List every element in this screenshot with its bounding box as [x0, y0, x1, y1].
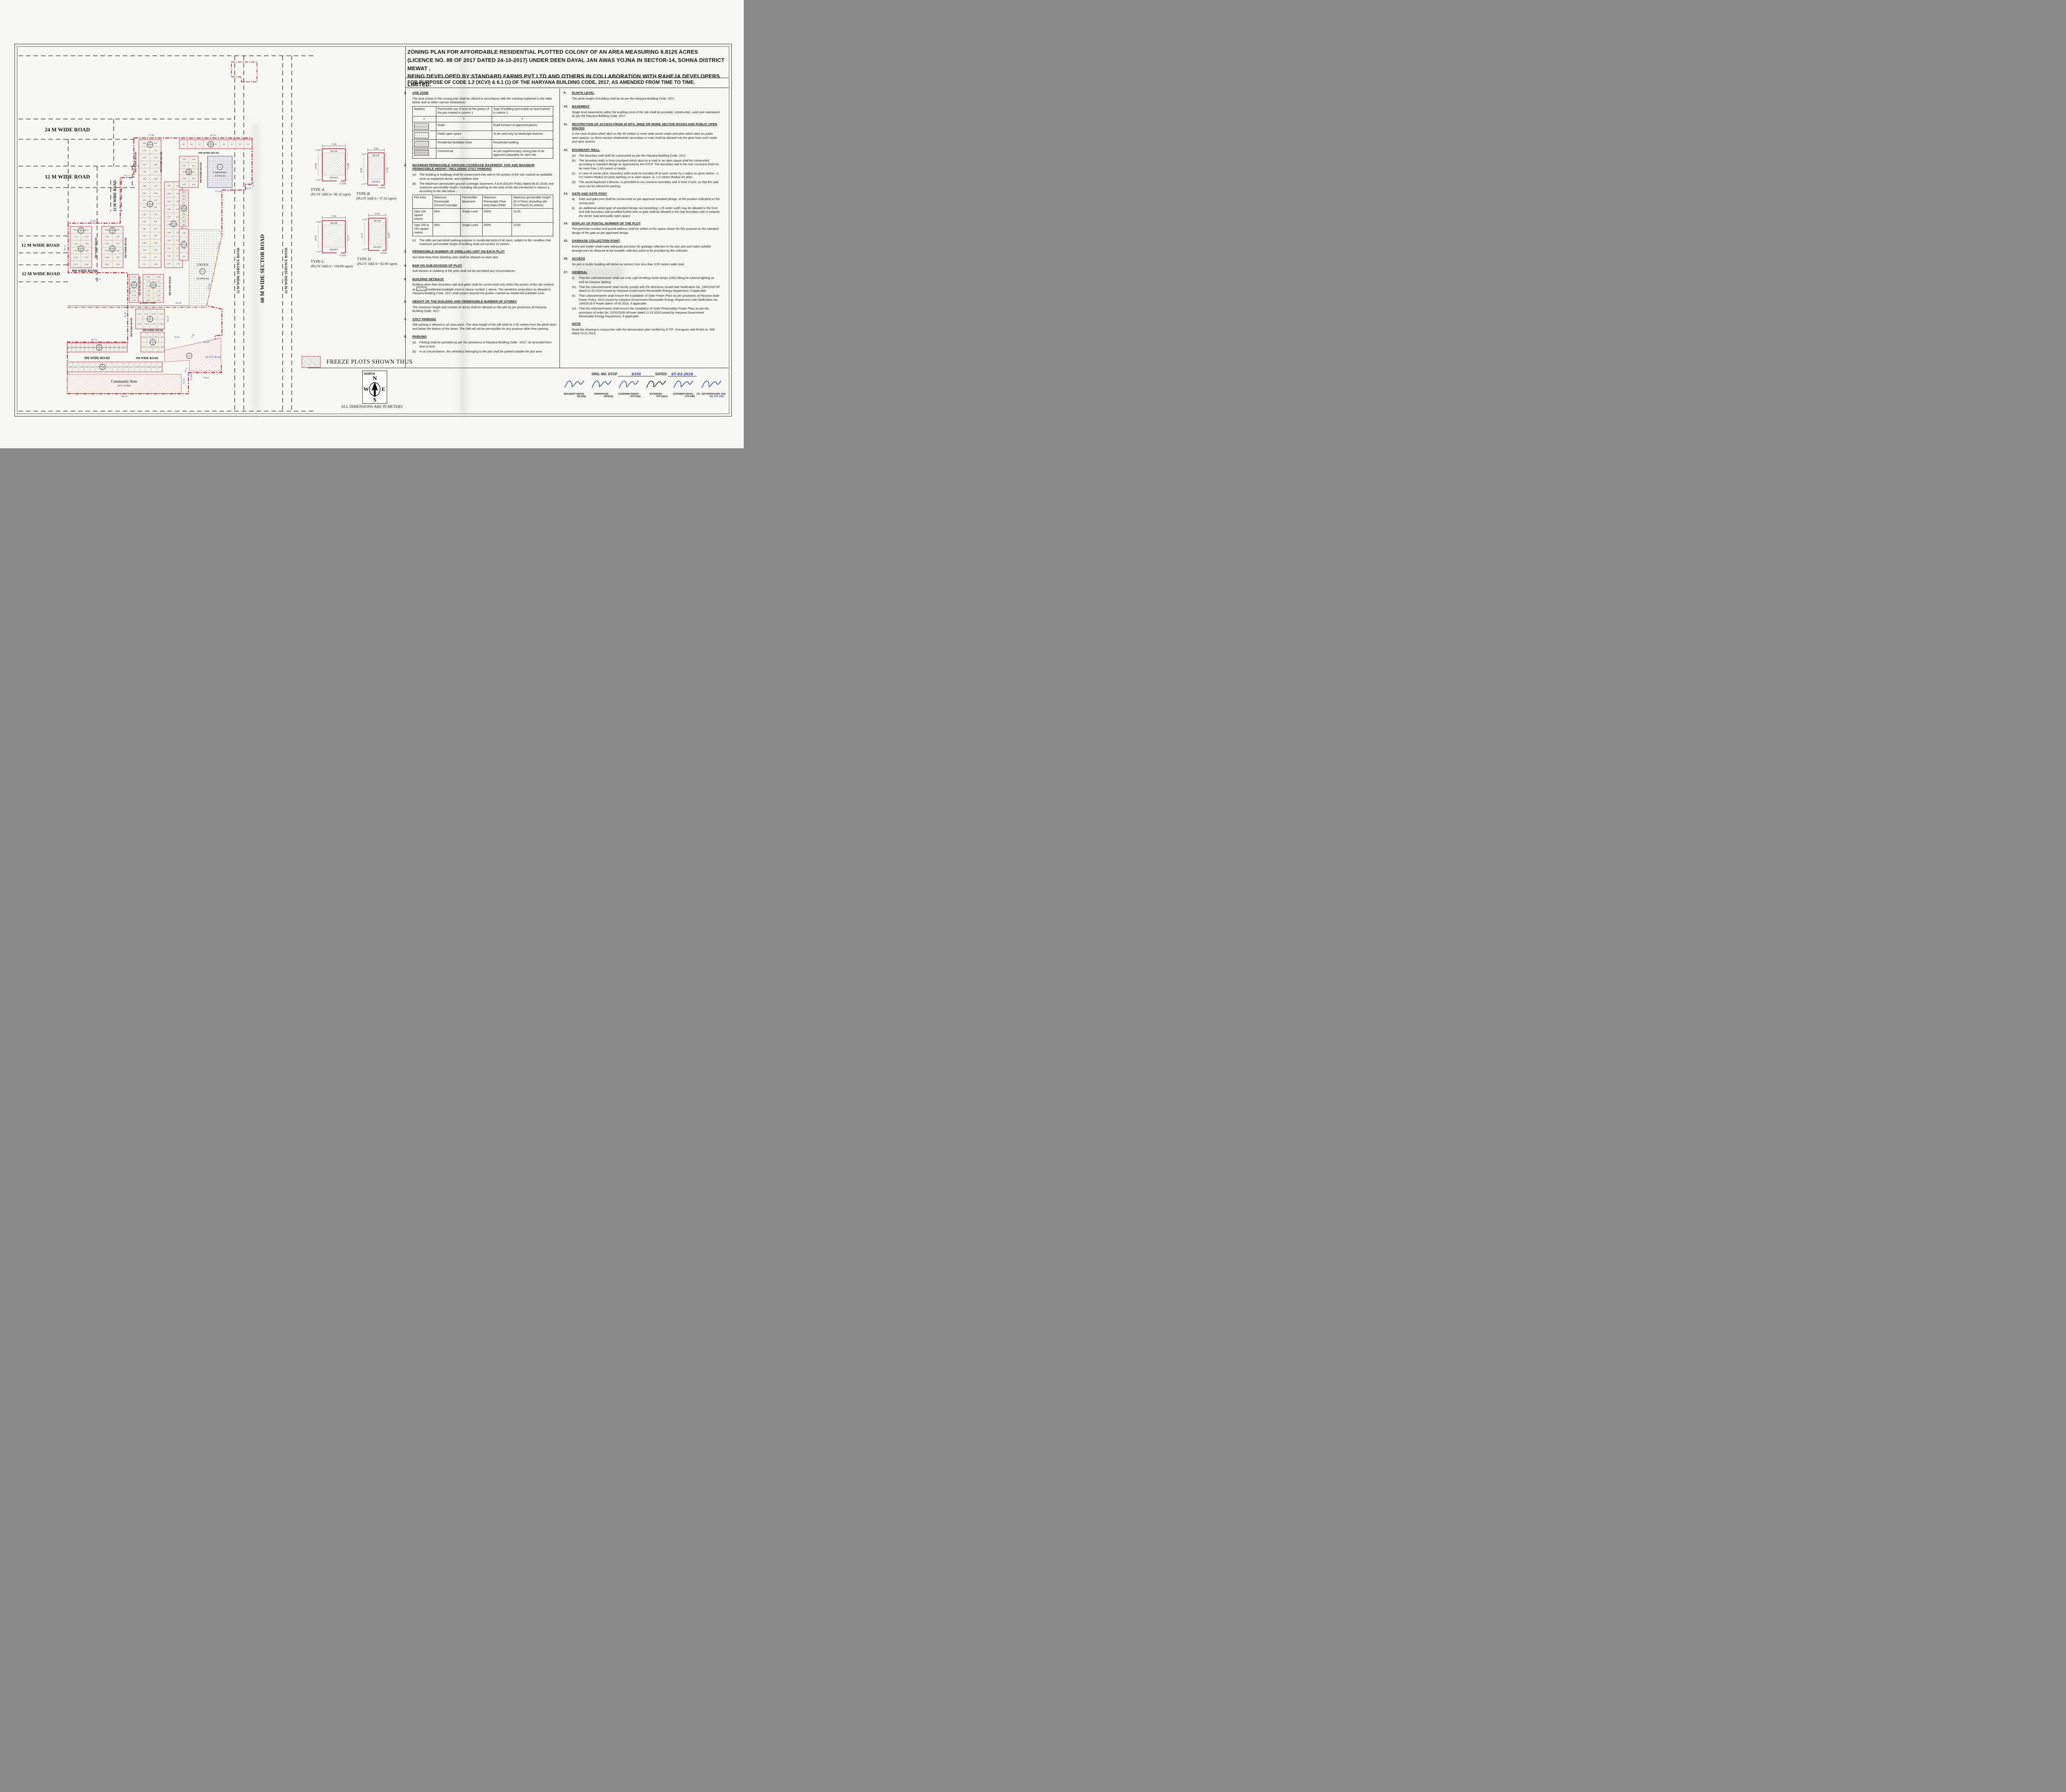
- plot-number: C122: [132, 295, 136, 297]
- plot-number: A12: [192, 171, 196, 173]
- plot-number: C89: [167, 232, 171, 234]
- block-id-circle: C4: [181, 242, 187, 248]
- svg-text:C: C: [112, 246, 113, 249]
- plot-number: C33: [182, 255, 186, 257]
- block-id-circle: C34: [147, 201, 153, 207]
- svg-text:10: 10: [80, 250, 82, 252]
- plot-number: B21: [182, 195, 186, 197]
- plot-number: B155: [110, 347, 115, 349]
- plot-number: C138: [152, 313, 156, 315]
- plot-number: C41: [154, 228, 157, 230]
- block-id-circle: A9: [208, 141, 214, 148]
- detached-parcel-boundary: [231, 62, 257, 82]
- plot-number: C93: [167, 263, 171, 265]
- plot-number: C142: [144, 323, 149, 325]
- plot-number: C84: [167, 193, 171, 195]
- plot-number: C65: [143, 221, 146, 223]
- svg-text:C: C: [152, 340, 154, 342]
- plot-number: D99: [116, 229, 120, 231]
- plot-number: C72: [176, 263, 180, 265]
- plot-number: C38: [154, 249, 157, 251]
- block-id-circle: C22: [171, 221, 176, 227]
- svg-text:C: C: [149, 202, 151, 204]
- dimension-label: 63.89: [90, 220, 96, 223]
- plot-number: C70: [143, 256, 146, 258]
- plot-number: B22: [182, 198, 186, 200]
- plot-number: A175: [118, 366, 123, 368]
- svg-text:14: 14: [98, 348, 100, 351]
- plot-number: C101: [105, 236, 109, 238]
- plot-number: A2: [239, 143, 241, 145]
- svg-text:10: 10: [188, 173, 190, 175]
- plot-number: A4: [223, 143, 225, 145]
- svg-text:8: 8: [152, 343, 154, 345]
- dimension-label: 50.29: [167, 316, 169, 322]
- plot-number: C148: [159, 346, 164, 348]
- plot-block: A9A8A7A6A5A4A3A2A1: [179, 140, 252, 149]
- svg-text:B: B: [98, 345, 100, 347]
- svg-text:22: 22: [172, 225, 175, 227]
- plot-number: C141: [152, 323, 156, 325]
- plot-number: C131: [157, 281, 161, 283]
- plot-number: B29: [182, 224, 186, 226]
- plot-number: A168: [79, 366, 84, 368]
- block-id-circle: G2: [187, 353, 192, 359]
- plot-number: C105: [105, 263, 109, 265]
- road-label: 9M WIDE ROAD: [134, 152, 137, 172]
- plot-number: B152: [123, 347, 128, 349]
- plot-number: A1: [247, 143, 249, 145]
- block-id-circle: G1: [200, 269, 205, 274]
- dimension-label: 96.98: [176, 302, 181, 305]
- plot-number: C104: [105, 257, 109, 259]
- road-label: 9M WIDE ROAD: [160, 152, 163, 172]
- plot-number: A7: [198, 143, 201, 145]
- plot-number: B154: [114, 347, 119, 349]
- plot-number: C68: [143, 242, 146, 244]
- road-label: 9M WIDE ROAD: [95, 238, 98, 258]
- road-label: 9M WIDE ROAD: [136, 357, 158, 360]
- plot-number: C130: [157, 276, 161, 278]
- svg-text:34: 34: [149, 205, 151, 207]
- plot-number: C90: [167, 239, 171, 241]
- plot-number: C143: [137, 323, 142, 325]
- plot-number: C116: [74, 257, 78, 259]
- plot-number: C125: [146, 295, 151, 297]
- plot-number: A173: [107, 366, 112, 368]
- plot-number: A15: [183, 158, 186, 160]
- plot-number: A169: [85, 366, 89, 368]
- dimension-label: 45.63: [129, 288, 131, 294]
- plot-number: B27: [182, 217, 186, 219]
- road-label: 9M WIDE ROAD: [200, 162, 202, 183]
- dimension-label: 19.03: [183, 378, 186, 384]
- plot-number: C117: [74, 263, 78, 265]
- plot-number: C85: [167, 200, 171, 202]
- plot-number: A53: [154, 142, 158, 144]
- plot-number: B153: [119, 347, 123, 349]
- plot-number: C137: [144, 313, 149, 315]
- community-acreage: (0.871 ACRE): [117, 384, 131, 387]
- svg-text:A: A: [210, 142, 212, 144]
- plot-number: A16: [183, 164, 186, 167]
- plot-number: C133: [157, 290, 161, 292]
- plot-number: C144: [142, 336, 146, 338]
- svg-text:C: C: [152, 283, 154, 285]
- plot-number: C97: [116, 243, 119, 245]
- plot-number: B20: [182, 191, 186, 193]
- plot-number: C95: [116, 257, 119, 259]
- svg-text:4: 4: [183, 245, 185, 248]
- dimension-label: 80.32: [95, 278, 101, 281]
- svg-text:C1: C1: [219, 166, 221, 169]
- svg-text:8: 8: [150, 320, 151, 322]
- site-plan: A54A53C55C52C56C51C57C50C58C49C59C48C60C…: [0, 0, 744, 448]
- green-acreage: (0.339Acre): [197, 277, 209, 280]
- svg-text:2: 2: [150, 145, 151, 148]
- plot-number: A180: [146, 366, 151, 368]
- plot-number: C86: [167, 208, 171, 210]
- plot-number: A177: [129, 366, 134, 368]
- plot-number: A176: [124, 366, 129, 368]
- plot-number: C47: [154, 185, 157, 187]
- plot-number: B163: [76, 347, 81, 349]
- svg-text:9: 9: [210, 145, 212, 148]
- road-label: 9M WIDE ROAD: [139, 276, 141, 295]
- plot-number: C31: [182, 240, 186, 242]
- plot-number: A179: [141, 366, 145, 368]
- svg-text:17: 17: [101, 368, 104, 370]
- road-label: 24 M WIDE ROAD: [45, 126, 90, 133]
- dimension-label: 3.36: [190, 333, 195, 339]
- svg-text:C: C: [133, 283, 135, 285]
- plot-block: C129C130C128C131C127C132C126C133C125C134…: [143, 274, 164, 302]
- svg-text:C: C: [173, 221, 174, 224]
- svg-text:10: 10: [111, 250, 114, 252]
- plot-number: A170: [90, 366, 95, 368]
- dimension-label: 45.46: [124, 312, 127, 318]
- block-id-circle: B14: [96, 345, 102, 351]
- plot-number: C88: [167, 224, 171, 226]
- plot-number: B26: [182, 213, 186, 215]
- plot-number: A19: [183, 183, 186, 186]
- plot-number: C42: [154, 221, 157, 223]
- plot-number: A166: [68, 366, 73, 368]
- plot-number: C151: [142, 346, 146, 348]
- plot-number: C30: [182, 232, 186, 234]
- svg-text:6: 6: [133, 286, 135, 288]
- green-label: GREEN: [197, 263, 209, 267]
- dimension-label: 148.20: [120, 395, 127, 398]
- svg-text:2: 2: [81, 231, 82, 234]
- plot-number: C139: [159, 313, 163, 315]
- plot-number: C66: [143, 228, 146, 230]
- plot-number: B164: [72, 347, 76, 349]
- plot-number: C127: [146, 285, 151, 287]
- road-label: 60 M WIDE SECTOR ROAD: [259, 234, 265, 303]
- plot-number: C113: [74, 236, 78, 238]
- plot-number: C129: [146, 276, 151, 278]
- plot-number: C96: [116, 250, 119, 252]
- road-label: 9M WIDE ROAD: [198, 152, 219, 155]
- plot-number: A13: [192, 177, 196, 179]
- commercial-label: Commercial: [213, 171, 226, 174]
- road-label: 9M WIDE ROAD: [124, 238, 127, 258]
- plot-number: B160: [89, 347, 93, 349]
- svg-text:A: A: [188, 169, 190, 172]
- road-label: 3karam road: [139, 301, 155, 305]
- plot-number: C55: [143, 149, 146, 151]
- dimension-label: 39.13: [124, 174, 129, 177]
- plot-block: A166A167A168A169A170A171A172A173A174A175…: [67, 362, 162, 372]
- svg-text:A: A: [102, 364, 103, 367]
- plot-number: A178: [135, 366, 140, 368]
- community-label: Community Area: [111, 379, 137, 383]
- road-label: 9M WIDE ROAD: [72, 269, 97, 273]
- plot-number: B161: [85, 347, 89, 349]
- svg-text:D: D: [112, 228, 113, 231]
- block-id-circle: C12: [150, 282, 156, 288]
- g2-acreage-handwritten: (0.315 Acre): [205, 355, 221, 359]
- plot-number: C45: [154, 199, 157, 201]
- plot-number: C134: [157, 295, 161, 297]
- plot-number: A11: [192, 164, 195, 167]
- plot-number: C98: [116, 236, 119, 238]
- dimension-label: 30.00: [203, 376, 209, 379]
- dimension-label: 35.06: [174, 336, 180, 339]
- road-label: 12 M WIDE SERVICE ROAD: [236, 248, 240, 293]
- plot-number: C48: [154, 178, 157, 180]
- plot-number: C37: [154, 256, 157, 258]
- plot-number: C106: [84, 263, 89, 265]
- plot-number: A174: [113, 366, 117, 368]
- dimension-label: 15.58: [245, 187, 251, 190]
- plot-number: C121: [132, 290, 136, 292]
- plot-number: C118: [132, 276, 136, 278]
- plot-number: A5: [214, 143, 217, 145]
- block-id-circle: A17: [100, 364, 105, 370]
- plot-number: C40: [154, 235, 157, 237]
- dimension-label: 81.01: [210, 134, 216, 137]
- block-id-circle: B10: [181, 205, 187, 212]
- plot-number: C128: [146, 281, 151, 283]
- road-label: 12 M WIDE ROAD: [21, 243, 60, 248]
- dimension-label: 57.88: [148, 134, 154, 137]
- svg-text:C: C: [149, 317, 151, 319]
- block-id-circle: A10: [186, 169, 192, 175]
- plot-number: C83: [167, 185, 171, 187]
- plot-number: C44: [154, 206, 157, 208]
- plot-number: C51: [154, 157, 157, 159]
- plot-number: C71: [143, 263, 146, 265]
- plot-number: C52: [154, 149, 157, 151]
- plot-number: C109: [84, 243, 89, 245]
- plot-number: C64: [143, 213, 146, 215]
- svg-text:12: 12: [152, 286, 155, 288]
- plot-number: A17: [183, 171, 186, 173]
- block-id-circle: A2: [147, 142, 153, 148]
- green-area: [189, 230, 222, 306]
- plot-number: D100: [105, 229, 109, 231]
- dimension-label: 10.00: [190, 375, 193, 381]
- plot-number: C57: [143, 164, 146, 166]
- plot-number: B165: [67, 347, 72, 349]
- block-id-circle: C8: [147, 316, 153, 322]
- plot-number: C126: [146, 290, 151, 292]
- block-id-circle: C8: [150, 339, 156, 345]
- commercial-acreage: (0.540 Acre): [214, 175, 225, 177]
- plot-number: C39: [154, 242, 157, 244]
- block-id-circle: D2: [109, 228, 115, 234]
- plot-number: C43: [154, 213, 157, 215]
- plot-number: A3: [231, 143, 233, 145]
- plot-number: C132: [157, 285, 161, 287]
- plot-number: A10: [192, 158, 196, 160]
- plot-number: C150: [148, 346, 152, 348]
- dimension-label: 67.69: [215, 190, 221, 193]
- plot-number: C50: [154, 164, 157, 166]
- svg-text:A: A: [149, 142, 151, 145]
- svg-text:C: C: [183, 242, 185, 245]
- block-id-circle: D2: [78, 228, 84, 234]
- plot-number: C61: [143, 192, 146, 194]
- plot-number: A182: [157, 366, 162, 368]
- svg-text:G2: G2: [188, 355, 191, 357]
- plot-number: C58: [143, 171, 146, 173]
- plot-number: A18: [183, 177, 186, 179]
- road-label: 12 M WIDE SERVICE ROAD: [284, 248, 288, 293]
- plot-number: C103: [105, 250, 109, 252]
- dimension-label: 50.33: [64, 245, 67, 251]
- plot-number: C102: [105, 243, 109, 245]
- plot-number: C140: [159, 323, 163, 325]
- dimension-label: 14.57: [184, 367, 188, 373]
- svg-text:10: 10: [183, 209, 185, 212]
- plot-number: A14: [192, 183, 196, 186]
- dimension-label: 12.41: [252, 181, 255, 187]
- plot-number: C114: [74, 243, 78, 245]
- plot-number: C145: [148, 336, 152, 338]
- plot-number: C136: [137, 313, 142, 315]
- plot-number: A54: [143, 142, 147, 144]
- plot-number: B23: [182, 202, 186, 204]
- road-label: 9M WIDE ROAD: [143, 329, 163, 332]
- plot-number: B28: [182, 220, 186, 222]
- road-label: 9M WIDE ROAD: [131, 317, 133, 337]
- plot-number: A9: [182, 143, 185, 145]
- plot-number: C87: [167, 216, 171, 218]
- road-label: 9M WIDE ROAD: [169, 276, 171, 295]
- plot-number: A8: [190, 143, 193, 145]
- svg-text:C: C: [80, 246, 82, 249]
- plot-number: B156: [106, 347, 110, 349]
- plot-number: C107: [84, 257, 89, 259]
- svg-text:D: D: [80, 228, 82, 231]
- plot-number: C91: [167, 247, 171, 249]
- plot-number: C67: [143, 235, 146, 237]
- plot-number: C49: [154, 171, 157, 173]
- plot-number: A167: [74, 366, 78, 368]
- road-label: 12 M WIDE ROAD: [22, 271, 60, 276]
- zoning-plan-sheet: { "colors":{"boundary_red":"#c5303f","pl…: [0, 0, 744, 448]
- plot-number: C149: [154, 346, 158, 348]
- road-label: 12 M WIDE ROAD: [113, 180, 117, 212]
- plot-number: C62: [143, 199, 146, 201]
- block-id-circle: C10: [109, 246, 115, 252]
- plot-number: C59: [143, 178, 146, 180]
- plot-number: C92: [167, 255, 171, 257]
- block-id-circle: C10: [78, 246, 84, 252]
- plot-number: D111: [84, 229, 89, 231]
- plot-number: C69: [143, 249, 146, 251]
- plot-number: C36: [154, 263, 157, 265]
- svg-text:B: B: [183, 206, 185, 208]
- community-area: [67, 374, 181, 393]
- g2-area: [164, 338, 221, 371]
- plot-number: B162: [80, 347, 85, 349]
- dimension-label: 35.00: [203, 341, 209, 344]
- block-id-circle: C1: [217, 164, 223, 170]
- plot-number: C63: [143, 206, 146, 208]
- plot-number: C60: [143, 185, 146, 187]
- plot-number: C108: [84, 250, 89, 252]
- plot-number: C94: [116, 263, 119, 265]
- plot-number: C110: [84, 236, 88, 238]
- plot-number: C46: [154, 192, 157, 194]
- svg-text:2: 2: [112, 231, 113, 234]
- block-id-circle: C6: [131, 282, 137, 288]
- dimension-label: 80.65: [91, 338, 97, 341]
- plot-number: B157: [102, 347, 106, 349]
- plot-number: C32: [182, 248, 186, 250]
- road-label: 12 M WIDE ROAD: [45, 174, 90, 180]
- plot-number: A181: [152, 366, 157, 368]
- plot-number: C147: [159, 336, 164, 338]
- road-label: 9M WIDE ROAD: [84, 356, 109, 360]
- plot-number: C123: [132, 299, 136, 301]
- plot-number: C56: [143, 157, 146, 159]
- svg-text:G1: G1: [201, 271, 204, 273]
- plot-number: C135: [157, 299, 161, 301]
- plot-number: C146: [154, 336, 158, 338]
- plot-number: D112: [74, 229, 78, 231]
- plot-number: C115: [74, 250, 78, 252]
